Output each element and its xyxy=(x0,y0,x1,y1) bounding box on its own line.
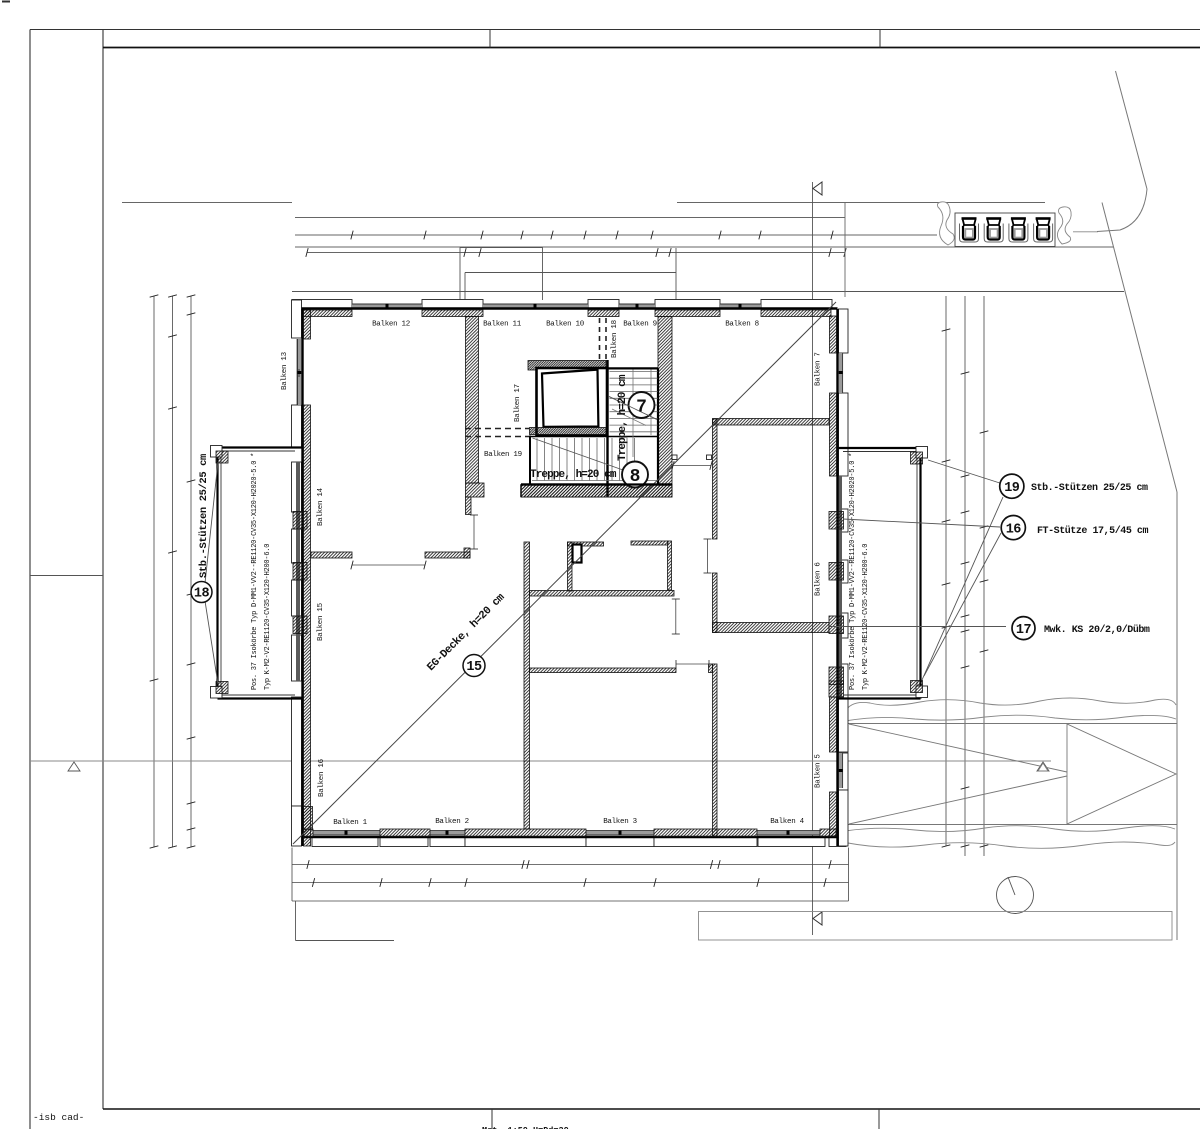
svg-text:Balken 14: Balken 14 xyxy=(317,487,325,526)
svg-text:Treppe, h=20 cm: Treppe, h=20 cm xyxy=(530,469,617,481)
svg-text:17: 17 xyxy=(1016,623,1032,638)
svg-text:Balken 8: Balken 8 xyxy=(725,321,759,329)
svg-text:Balken 11: Balken 11 xyxy=(483,321,522,329)
svg-text:Balken 13: Balken 13 xyxy=(281,351,289,390)
svg-text:Balken 4: Balken 4 xyxy=(770,818,804,826)
svg-text:Balken 10: Balken 10 xyxy=(546,321,585,329)
svg-text:Balken 5: Balken 5 xyxy=(815,754,823,788)
svg-text:Balken 17: Balken 17 xyxy=(514,384,522,422)
svg-text:Stb.-Stützen 25/25 cm: Stb.-Stützen 25/25 cm xyxy=(1031,482,1148,494)
svg-text:Mst. 1:50 H=Dd=20: Mst. 1:50 H=Dd=20 xyxy=(482,1126,569,1129)
svg-text:Balken 7: Balken 7 xyxy=(815,352,823,386)
svg-text:18: 18 xyxy=(194,587,210,602)
svg-text:Typ K-M2-V2-RE1120-CV35-X120-H: Typ K-M2-V2-RE1120-CV35-X120-H200-6.0 xyxy=(264,544,272,690)
svg-text:Balken 3: Balken 3 xyxy=(603,818,637,826)
svg-text:Balken 1: Balken 1 xyxy=(333,819,367,827)
svg-text:Stb.-Stützen 25/25 cm: Stb.-Stützen 25/25 cm xyxy=(198,454,210,578)
svg-text:Balken 12: Balken 12 xyxy=(372,321,410,329)
svg-text:Balken 15: Balken 15 xyxy=(317,602,325,641)
svg-text:15: 15 xyxy=(466,660,482,675)
svg-text:Balken 2: Balken 2 xyxy=(435,818,469,826)
svg-text:Balken 18: Balken 18 xyxy=(611,320,619,358)
svg-text:Balken 16: Balken 16 xyxy=(318,758,326,797)
svg-text:19: 19 xyxy=(1004,481,1020,496)
svg-text:Balken 9: Balken 9 xyxy=(623,321,657,329)
svg-text:FT-Stütze 17,5/45 cm: FT-Stütze 17,5/45 cm xyxy=(1037,525,1148,537)
svg-text:Balken 6: Balken 6 xyxy=(815,562,823,596)
svg-text:Balken 19: Balken 19 xyxy=(484,451,522,459)
svg-text:Treppe, h=20 cm: Treppe, h=20 cm xyxy=(617,374,629,461)
svg-text:Mwk. KS 20/2,0/Dübm: Mwk. KS 20/2,0/Dübm xyxy=(1044,624,1150,636)
svg-text:16: 16 xyxy=(1006,522,1022,537)
svg-text:-isb cad-: -isb cad- xyxy=(33,1112,84,1123)
svg-text:8: 8 xyxy=(630,467,641,487)
svg-text:7: 7 xyxy=(636,398,647,418)
svg-text:Pos. 37 Isokörbe Typ D-MM1-VV2: Pos. 37 Isokörbe Typ D-MM1-VV2--RE1120-C… xyxy=(251,453,259,690)
svg-text:Typ K-M2-V2-RE1120-CV35-X120-H: Typ K-M2-V2-RE1120-CV35-X120-H200-6.0 xyxy=(862,544,870,690)
svg-text:Pos. 37 Isokörbe Typ D-MM1-VV2: Pos. 37 Isokörbe Typ D-MM1-VV2--RE1120-C… xyxy=(849,453,857,690)
